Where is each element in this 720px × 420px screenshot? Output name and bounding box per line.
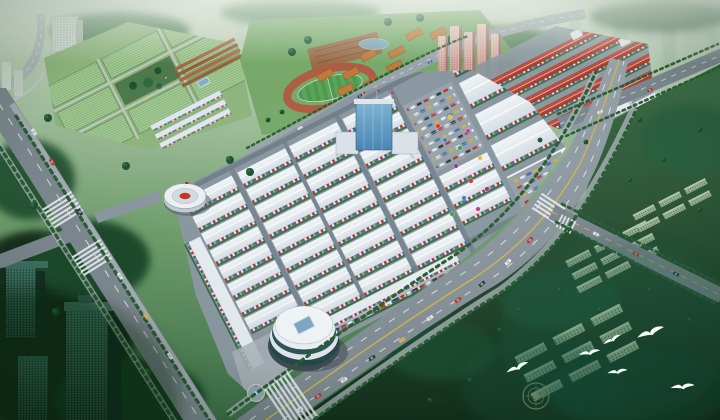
vignette bbox=[0, 0, 720, 420]
aerial-rendering: Aerial master-plan rendering of a wholes… bbox=[0, 0, 720, 420]
